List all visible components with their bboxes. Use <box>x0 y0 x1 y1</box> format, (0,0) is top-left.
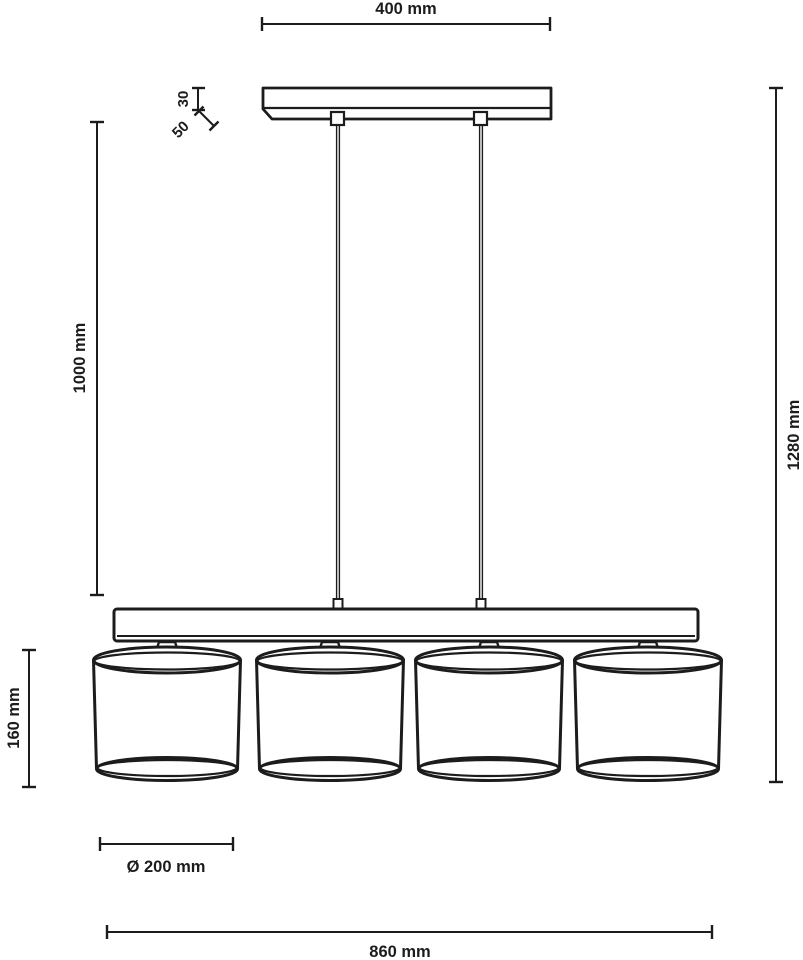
suspension-cables <box>331 112 487 609</box>
pendant-lamp-technical-drawing: 400 mm 30 50 1000 mm 1280 mm 160 mm <box>0 0 803 960</box>
beam <box>114 609 698 641</box>
lamp-shade-2 <box>257 642 404 781</box>
dim-fixture-length-label: 860 mm <box>369 943 430 960</box>
ceiling-canopy <box>263 88 551 119</box>
dimension-fixture-length: 860 mm <box>107 925 712 960</box>
drawing-canvas: 400 mm 30 50 1000 mm 1280 mm 160 mm <box>0 0 803 960</box>
canopy-cable-holder-right <box>474 112 487 125</box>
dim-shade-height-label: 160 mm <box>5 687 23 748</box>
dim-canopy-total-height-label: 50 <box>169 118 193 142</box>
dimension-canopy-total-height: 50 <box>169 107 219 142</box>
dim-suspension-length-label: 1000 mm <box>71 323 89 394</box>
dimension-canopy-width: 400 mm <box>262 0 550 31</box>
dim-canopy-width-label: 400 mm <box>375 0 436 18</box>
fixture-drawing <box>94 88 722 781</box>
dim-overall-height-label: 1280 mm <box>785 400 803 471</box>
lamp-shade-4 <box>575 642 722 781</box>
lamp-shade-3 <box>416 642 563 781</box>
dimension-shade-height: 160 mm <box>5 650 36 787</box>
dim-canopy-height-label: 30 <box>175 91 192 108</box>
dimension-canopy-height: 30 <box>175 88 205 110</box>
canopy-body <box>263 88 551 119</box>
lamp-shade-1 <box>94 642 241 781</box>
dimension-shade-diameter: Ø 200 mm <box>100 837 233 876</box>
dimension-overall-height: 1280 mm <box>769 88 803 782</box>
dimension-suspension-length: 1000 mm <box>71 122 104 595</box>
dim-line <box>199 111 214 126</box>
dim-shade-diameter-label: Ø 200 mm <box>127 858 206 876</box>
canopy-cable-holder-left <box>331 112 344 125</box>
